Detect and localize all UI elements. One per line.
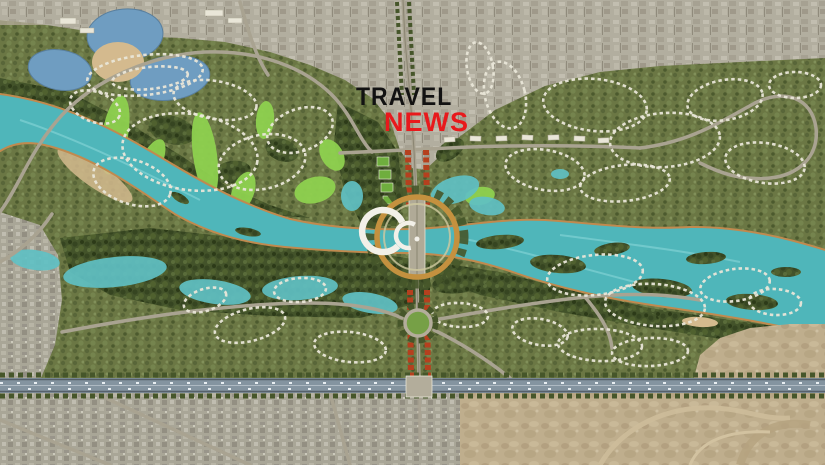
highway-overpass — [406, 376, 432, 397]
green-roof-building — [379, 170, 391, 179]
logo-news-text: NEWS — [384, 109, 469, 136]
boulevard-road-tail — [419, 393, 420, 440]
facility-building — [228, 18, 242, 23]
masterplan-map — [0, 0, 825, 465]
roadside-building — [470, 136, 481, 141]
facility-building — [80, 28, 94, 33]
roadside-building — [496, 136, 507, 141]
roundabout-green — [405, 310, 431, 336]
pond — [551, 169, 569, 179]
facility-building — [205, 10, 223, 16]
masterplan-screenshot: TRAVEL NEWS — [0, 0, 825, 465]
green-roof-building — [381, 183, 393, 192]
roadside-building — [444, 137, 455, 143]
island — [771, 267, 801, 277]
roadside-building — [548, 135, 559, 140]
spiral-building-core — [415, 237, 420, 242]
existing-city-southwest — [0, 393, 460, 465]
logo-travel-text: TRAVEL — [356, 84, 469, 109]
pond — [341, 181, 363, 211]
travel-news-logo: TRAVEL NEWS — [356, 84, 469, 136]
roadside-building — [522, 135, 533, 141]
roadside-building — [574, 136, 585, 141]
green-roof-building — [377, 157, 389, 166]
roadside-building — [598, 138, 609, 143]
facility-building — [60, 18, 76, 24]
